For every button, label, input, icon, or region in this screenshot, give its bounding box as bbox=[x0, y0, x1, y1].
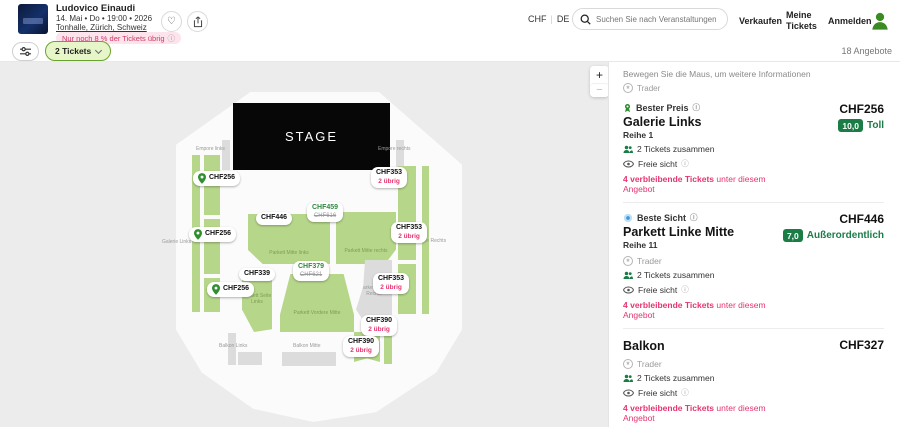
price-pill[interactable]: CHF353 2 übrig bbox=[371, 167, 407, 188]
section-balkon-mitte[interactable] bbox=[282, 352, 336, 366]
ticket-listing[interactable]: Bester Preis ⓘ Galerie Links Reihe 1 2 T… bbox=[623, 93, 884, 203]
listing-badge: Beste Sicht ⓘ bbox=[623, 212, 774, 223]
map-hover-hint: Bewegen Sie die Maus, um weitere Informa… bbox=[623, 69, 884, 79]
listing-price: CHF446 bbox=[774, 212, 884, 226]
listing-section-title: Parkett Linke Mitte bbox=[623, 225, 774, 239]
listing-view: Freie sicht ⓘ bbox=[623, 158, 774, 169]
trader-icon: ★ bbox=[623, 256, 633, 266]
price-pill[interactable]: CHF390 2 übrig bbox=[361, 315, 397, 336]
seating-map[interactable]: STAGE Parkett Mitte links Parkett Mitte … bbox=[0, 62, 608, 427]
language-label: DE bbox=[557, 14, 570, 24]
area-label-balkon-links: Balkon Links bbox=[219, 343, 247, 349]
pill-price: CHF256 bbox=[205, 230, 231, 239]
pill-remaining-note: 2 übrig bbox=[350, 347, 372, 355]
divider: | bbox=[551, 14, 553, 24]
nav-my-tickets[interactable]: Meine Tickets bbox=[786, 10, 822, 33]
price-pill[interactable]: CHF256 bbox=[193, 171, 240, 186]
trader-icon: ★ bbox=[623, 83, 633, 93]
offers-count: 18 Angebote bbox=[841, 46, 892, 56]
filter-sliders-icon bbox=[19, 46, 32, 57]
map-zoom-control: + − bbox=[590, 66, 608, 97]
map-pin-icon bbox=[194, 229, 202, 240]
section-balkon-strip[interactable] bbox=[228, 333, 236, 365]
listing-row-number: Reihe 1 bbox=[623, 130, 774, 140]
nav-login[interactable]: Anmelden bbox=[828, 16, 872, 26]
share-icon bbox=[193, 16, 203, 28]
event-venue-link[interactable]: Tonhalle, Zürich, Schweiz bbox=[56, 23, 147, 32]
section-label: Parkett Mitte links bbox=[248, 251, 330, 257]
listing-rating: 10,0 Toll bbox=[774, 119, 884, 132]
map-pin-icon bbox=[212, 284, 220, 295]
listings: Bester Preis ⓘ Galerie Links Reihe 1 2 T… bbox=[609, 93, 900, 427]
listing-view: Freie sicht ⓘ bbox=[623, 387, 774, 398]
section-parkett-vordere-mitte[interactable]: Parkett Vordere Mitte bbox=[280, 274, 354, 332]
listing-badge: Bester Preis ⓘ bbox=[623, 102, 774, 113]
listing-together: 2 Tickets zusammen bbox=[623, 373, 774, 383]
together-label: 2 Tickets zusammen bbox=[637, 270, 714, 280]
pill-price: CHF353 bbox=[378, 275, 404, 284]
section-label: Parkett Vordere Mitte bbox=[280, 311, 354, 317]
price-pill[interactable]: CHF353 2 übrig bbox=[391, 222, 427, 243]
zoom-in-button[interactable]: + bbox=[590, 66, 608, 83]
ticket-listing[interactable]: Beste Sicht ⓘ Parkett Linke Mitte Reihe … bbox=[623, 203, 884, 329]
rating-score-badge: 7,0 bbox=[783, 229, 803, 242]
trader-legend: ★ Trader bbox=[623, 83, 884, 93]
share-button[interactable] bbox=[187, 11, 208, 32]
listing-rating: 7,0 Außerordentlich bbox=[774, 229, 884, 242]
event-datetime: 14. Mai • Do • 19:00 • 2026 bbox=[56, 14, 152, 23]
info-icon[interactable]: ⓘ bbox=[681, 387, 689, 398]
info-icon[interactable]: ⓘ bbox=[690, 212, 698, 223]
listing-badge-label: Beste Sicht bbox=[637, 213, 686, 223]
pill-price: CHF353 bbox=[396, 224, 422, 233]
zoom-out-button[interactable]: − bbox=[590, 83, 608, 97]
area-label-balkon-mitte: Balkon Mitte bbox=[293, 343, 321, 349]
trader-label: Trader bbox=[637, 359, 662, 369]
rating-score-badge: 10,0 bbox=[838, 119, 863, 132]
listing-price: CHF327 bbox=[774, 338, 884, 352]
currency-label: CHF bbox=[528, 14, 547, 24]
rating-label: Toll bbox=[867, 120, 884, 131]
account-button[interactable] bbox=[870, 11, 890, 31]
pill-price: CHF256 bbox=[209, 174, 235, 183]
price-pill[interactable]: CHF379 CHF621 bbox=[293, 261, 329, 281]
pill-price: CHF459 bbox=[312, 204, 338, 213]
info-icon[interactable]: ⓘ bbox=[681, 284, 689, 295]
section-label: Parkett Mitte rechts bbox=[336, 249, 396, 255]
top-chrome: Ludovico Einaudi 14. Mai • Do • 19:00 • … bbox=[0, 0, 900, 62]
pill-remaining-note: 2 übrig bbox=[368, 326, 390, 334]
listing-price: CHF256 bbox=[774, 102, 884, 116]
remaining-count: 4 verbleibende Tickets bbox=[623, 300, 714, 310]
offers-panel[interactable]: Bewegen Sie die Maus, um weitere Informa… bbox=[608, 62, 900, 427]
favorite-button[interactable]: ♡ bbox=[161, 11, 182, 32]
pill-remaining-note: 2 übrig bbox=[378, 178, 400, 186]
eye-icon bbox=[623, 286, 634, 294]
view-label: Freie sicht bbox=[638, 388, 677, 398]
pill-price: CHF446 bbox=[261, 214, 287, 223]
section-parkett-mitte-rechts[interactable]: Parkett Mitte rechts bbox=[336, 212, 396, 264]
best-price-icon bbox=[623, 103, 632, 113]
event-title: Ludovico Einaudi bbox=[56, 3, 135, 14]
people-icon bbox=[623, 145, 633, 154]
remaining-count: 4 verbleibende Tickets bbox=[623, 403, 714, 413]
info-icon[interactable]: ⓘ bbox=[681, 158, 689, 169]
listing-remaining: 4 verbleibende Tickets unter diesem Ange… bbox=[623, 403, 774, 423]
nav-sell[interactable]: Verkaufen bbox=[739, 16, 782, 26]
filter-button[interactable] bbox=[12, 42, 39, 61]
event-thumbnail bbox=[18, 4, 48, 34]
listing-section-title: Balkon bbox=[623, 339, 774, 353]
stage-block: STAGE bbox=[233, 103, 390, 170]
area-label-empore-rechts: Empore rechts bbox=[378, 146, 411, 152]
people-icon bbox=[623, 374, 633, 383]
pill-price: CHF339 bbox=[244, 270, 270, 279]
price-pill[interactable]: CHF353 2 übrig bbox=[373, 273, 409, 294]
view-label: Freie sicht bbox=[638, 285, 677, 295]
listing-together: 2 Tickets zusammen bbox=[623, 144, 774, 154]
people-icon bbox=[623, 271, 633, 280]
listing-trader: ★ Trader bbox=[623, 359, 774, 369]
search-box[interactable] bbox=[572, 8, 728, 30]
info-icon[interactable]: ⓘ bbox=[168, 33, 176, 44]
ticket-listing[interactable]: Balkon ★ Trader 2 Tickets zusammen F bbox=[623, 329, 884, 427]
section-balkon-links[interactable] bbox=[238, 352, 262, 365]
listing-badge-label: Bester Preis bbox=[636, 103, 689, 113]
eye-icon bbox=[623, 160, 634, 168]
pill-price: CHF256 bbox=[223, 285, 249, 294]
listing-row-number: Reihe 11 bbox=[623, 240, 774, 250]
search-input[interactable] bbox=[596, 15, 716, 24]
listing-remaining: 4 verbleibende Tickets unter diesem Ange… bbox=[623, 300, 774, 320]
together-label: 2 Tickets zusammen bbox=[637, 144, 714, 154]
ticket-quantity-filter[interactable]: 2 Tickets bbox=[45, 41, 111, 61]
map-pin-icon bbox=[198, 173, 206, 184]
pill-strike-price: CHF616 bbox=[314, 213, 336, 221]
ticket-quantity-label: 2 Tickets bbox=[55, 46, 91, 56]
rating-label: Außerordentlich bbox=[807, 230, 884, 241]
remaining-count: 4 verbleibende Tickets bbox=[623, 174, 714, 184]
price-pill[interactable]: CHF256 bbox=[189, 227, 236, 242]
price-pill[interactable]: CHF339 bbox=[239, 268, 275, 281]
currency-language-selector[interactable]: CHF | DE bbox=[528, 14, 578, 24]
listing-view: Freie sicht ⓘ bbox=[623, 284, 774, 295]
area-label-galerie-links: Galerie Links bbox=[162, 239, 191, 245]
section-empore-links[interactable] bbox=[222, 140, 230, 170]
pill-price: CHF390 bbox=[366, 317, 392, 326]
price-pill[interactable]: CHF459 CHF616 bbox=[307, 202, 343, 222]
listing-remaining: 4 verbleibende Tickets unter diesem Ange… bbox=[623, 174, 774, 194]
pill-price: CHF390 bbox=[348, 338, 374, 347]
pill-remaining-note: 2 übrig bbox=[398, 233, 420, 241]
listing-together: 2 Tickets zusammen bbox=[623, 270, 774, 280]
listing-trader: ★ Trader bbox=[623, 256, 774, 266]
pill-price: CHF379 bbox=[298, 263, 324, 272]
price-pill[interactable]: CHF256 bbox=[207, 282, 254, 297]
pill-strike-price: CHF621 bbox=[300, 272, 322, 280]
price-pill[interactable]: CHF390 2 übrig bbox=[343, 336, 379, 357]
price-pill[interactable]: CHF446 bbox=[256, 212, 292, 225]
trader-label: Trader bbox=[637, 256, 662, 266]
user-icon bbox=[870, 11, 890, 31]
together-label: 2 Tickets zusammen bbox=[637, 373, 714, 383]
trader-legend-label: Trader bbox=[637, 84, 660, 93]
info-icon[interactable]: ⓘ bbox=[693, 102, 701, 113]
view-label: Freie sicht bbox=[638, 159, 677, 169]
eye-icon bbox=[623, 389, 634, 397]
best-view-icon bbox=[623, 213, 633, 223]
search-icon bbox=[580, 14, 591, 25]
pill-price: CHF353 bbox=[376, 169, 402, 178]
listing-section-title: Galerie Links bbox=[623, 115, 774, 129]
trader-icon: ★ bbox=[623, 359, 633, 369]
chevron-down-icon bbox=[95, 46, 102, 53]
area-label-empore-links: Empore links bbox=[196, 146, 225, 152]
pill-remaining-note: 2 übrig bbox=[380, 284, 402, 292]
